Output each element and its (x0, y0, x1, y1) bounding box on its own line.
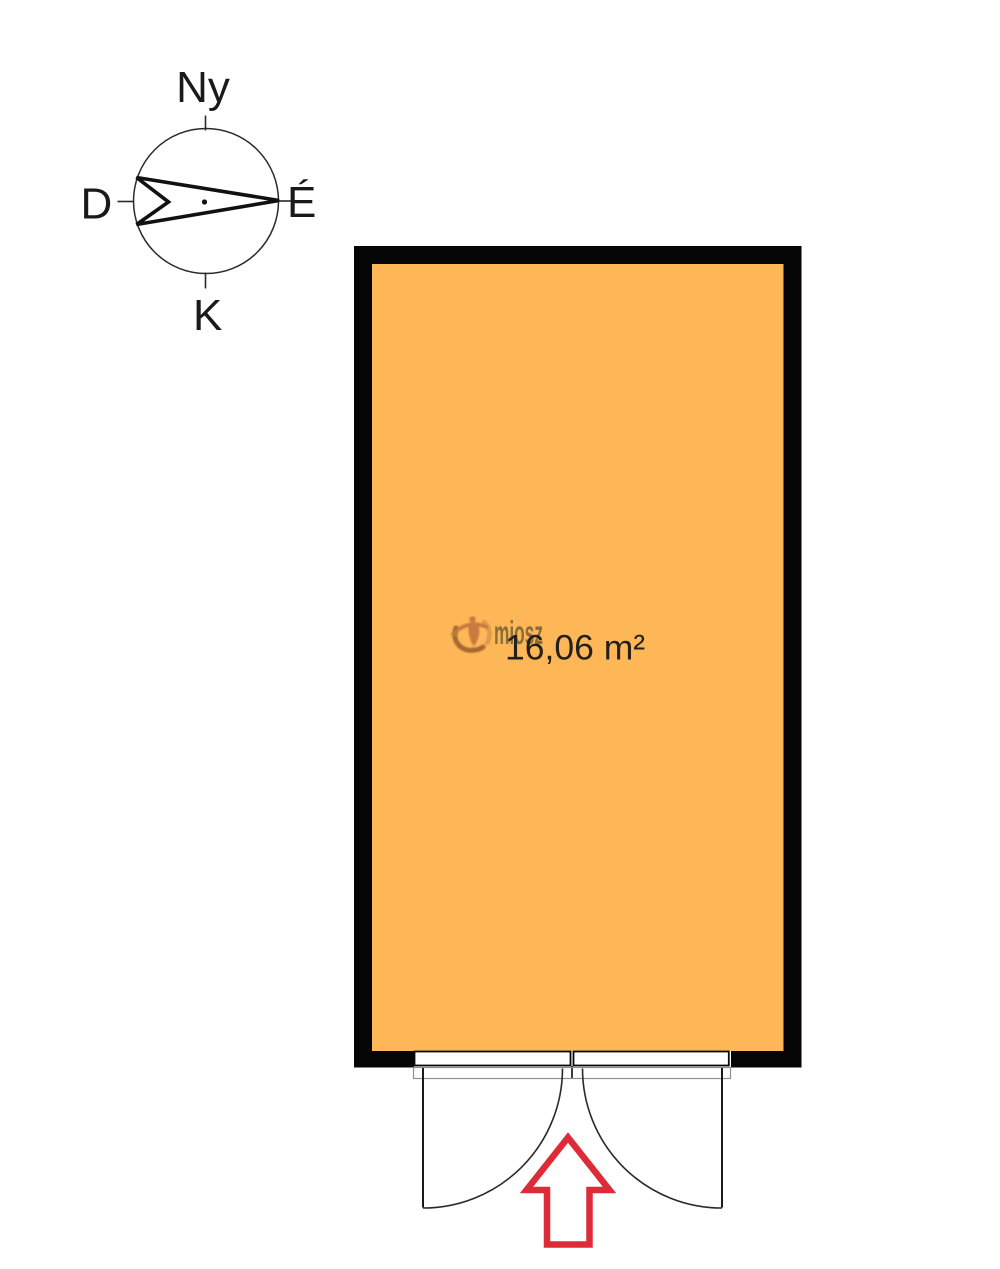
svg-text:D: D (81, 180, 113, 229)
svg-text:16,06 m²: 16,06 m² (505, 628, 645, 668)
svg-text:É: É (287, 178, 316, 227)
svg-text:K: K (193, 291, 222, 340)
svg-text:Ny: Ny (176, 63, 230, 112)
